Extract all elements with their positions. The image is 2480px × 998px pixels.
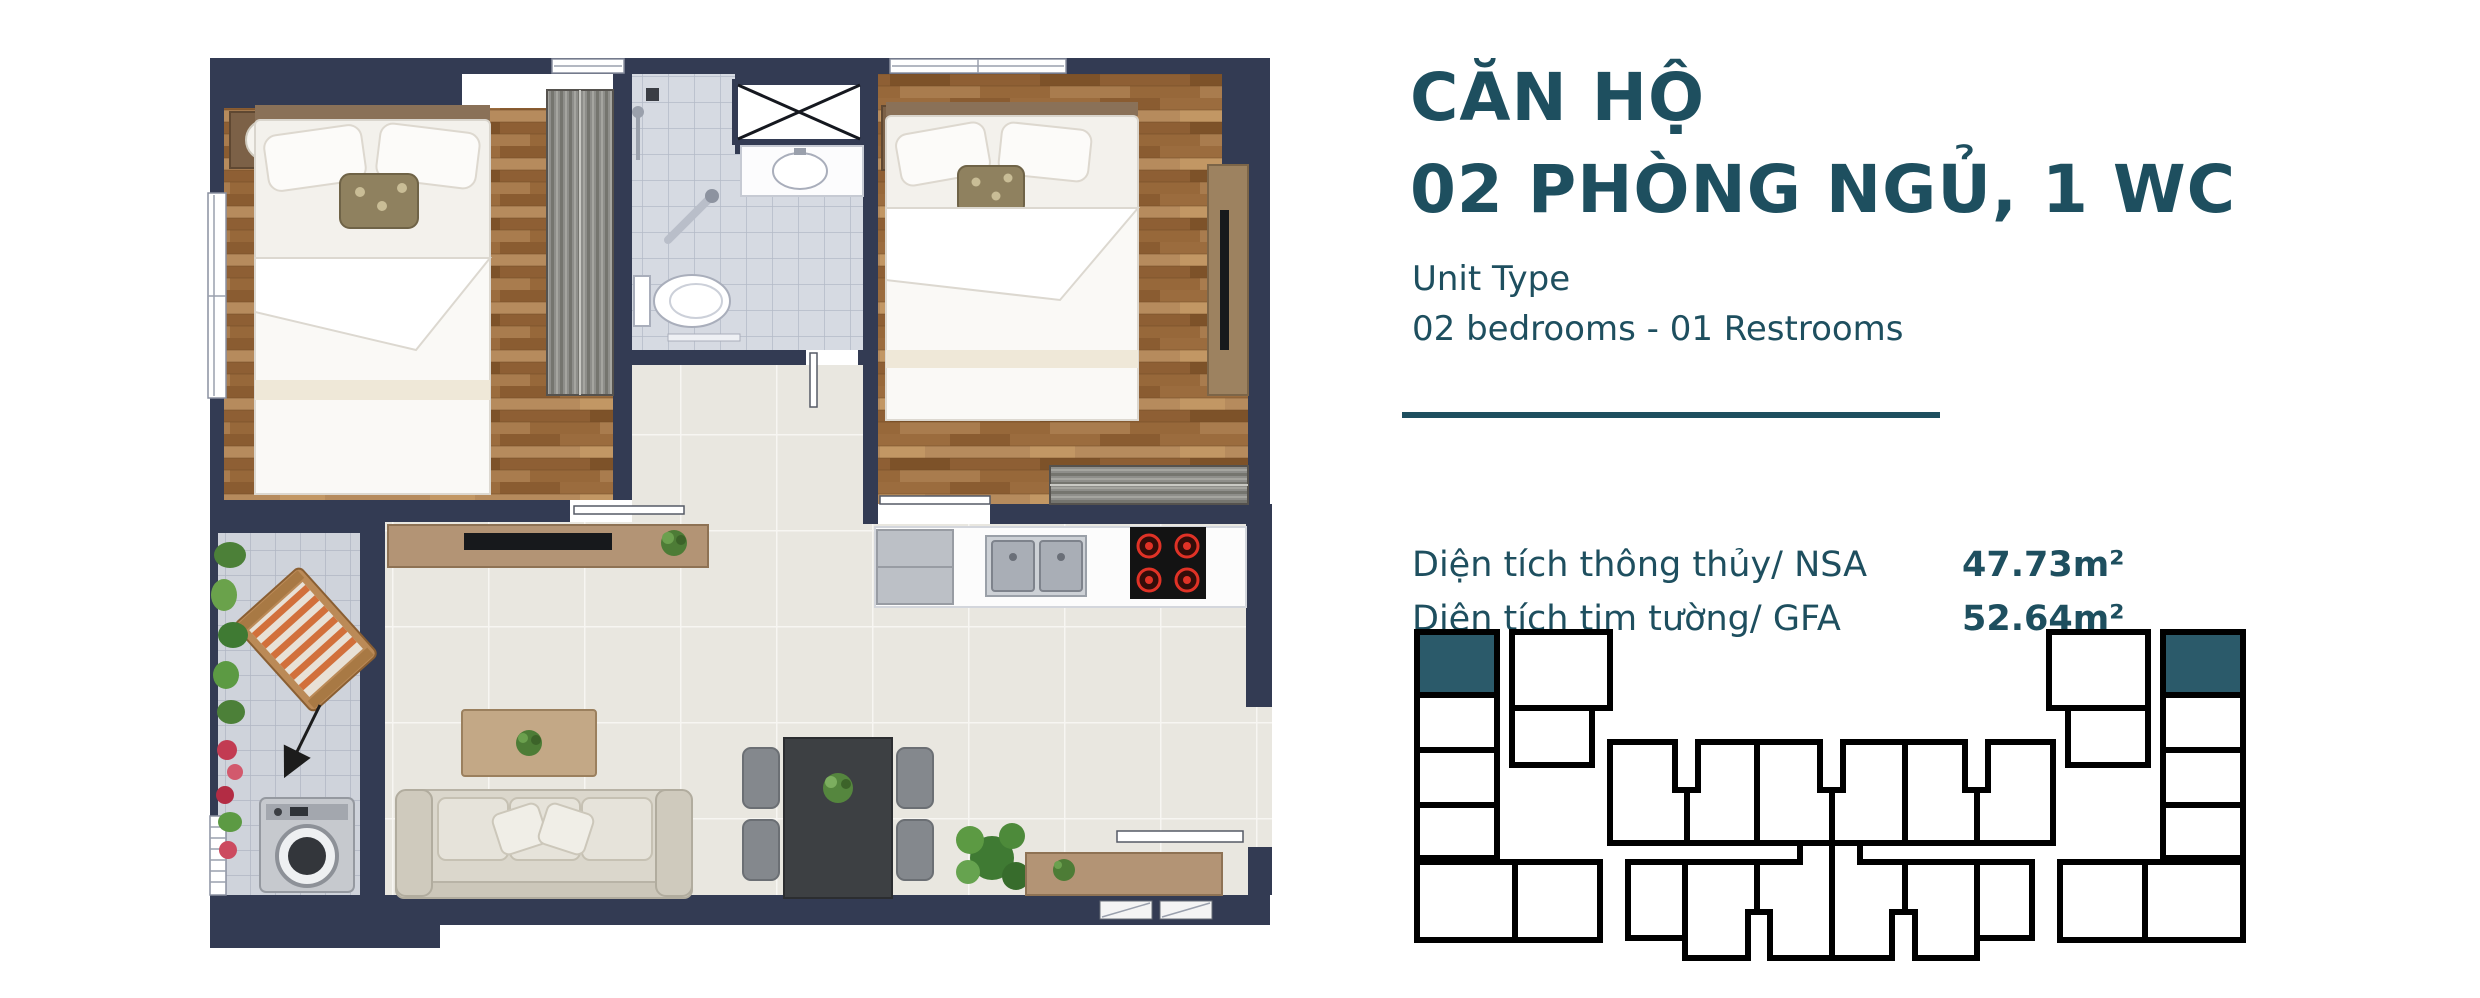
area-row-nsa: Diện tích thông thủy/ NSA47.73m²	[1412, 538, 2125, 592]
tv-console	[388, 525, 708, 567]
corridor-floor	[632, 365, 863, 523]
toilet	[634, 275, 730, 327]
page-title: CĂN HỘ 02 PHÒNG NGỦ, 1 WC	[1410, 52, 2236, 236]
entry-bench	[1026, 853, 1222, 895]
highlighted-unit-left	[1417, 632, 1497, 695]
unit-type: Unit Type 02 bedrooms - 01 Restrooms	[1412, 254, 1904, 354]
stove	[1130, 527, 1206, 599]
bed-1	[255, 105, 490, 494]
nsa-value: 47.73m²	[1962, 545, 2125, 585]
floor-drain	[646, 88, 659, 101]
washing-machine	[260, 798, 354, 892]
window-top-bath	[552, 59, 624, 73]
divider-line	[1402, 412, 1940, 418]
unit-type-label: Unit Type	[1412, 254, 1904, 304]
page: CĂN HỘ 02 PHÒNG NGỦ, 1 WC Unit Type 02 b…	[0, 0, 2480, 998]
vent-shaft	[735, 82, 863, 154]
unit-type-value: 02 bedrooms - 01 Restrooms	[1412, 304, 1904, 354]
kitchen	[875, 527, 1246, 607]
entry-floor	[1248, 707, 1272, 847]
title-line-2: 02 PHÒNG NGỦ, 1 WC	[1410, 144, 2236, 236]
window-top-bedroom-2	[890, 59, 1066, 73]
fridge	[877, 530, 953, 604]
key-plan-center-upper	[1610, 742, 2053, 843]
key-plan-center-lower	[1628, 843, 2032, 958]
key-plan-right-wing	[2049, 632, 2243, 940]
key-plan	[1405, 618, 2265, 970]
title-line-1: CĂN HỘ	[1410, 52, 2236, 144]
key-plan-left-wing	[1417, 632, 1610, 940]
coffee-table	[462, 710, 596, 776]
sofa	[396, 790, 692, 898]
nsa-label: Diện tích thông thủy/ NSA	[1412, 538, 1962, 592]
highlighted-unit-right	[2163, 632, 2243, 695]
kitchen-sink	[986, 536, 1086, 596]
tv-panel	[1208, 165, 1248, 395]
sink	[741, 146, 863, 196]
bedroom-2-door	[878, 496, 990, 524]
bed-2	[886, 102, 1138, 420]
floor-plan	[200, 50, 1280, 950]
window-left	[208, 193, 226, 398]
towel-rail	[668, 334, 740, 341]
